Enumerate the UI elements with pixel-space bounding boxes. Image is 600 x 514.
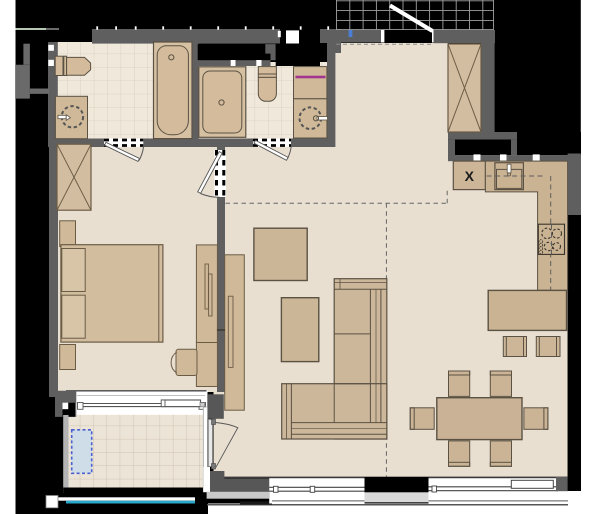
svg-text:X: X — [465, 168, 475, 184]
